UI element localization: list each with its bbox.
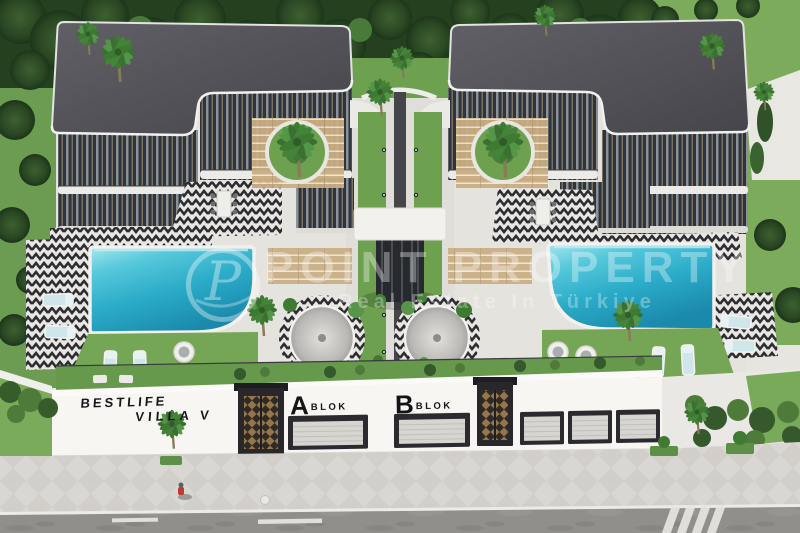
estate-name-line2: VILLA V [135,407,214,424]
block-a-letter: A [290,395,309,415]
watermark-title: POINT PROPERTY [264,243,751,293]
watermark-subtitle: Real Estate In Türkiye [338,291,656,314]
block-a-word: BLOK [311,401,348,413]
block-b-letter: B [395,394,414,414]
garage-door-2 [568,410,612,444]
aerial-villa-render: BESTLIFE VILLA V A BLOK B BLOK P POINT P… [0,0,800,533]
block-b-word: BLOK [416,400,453,412]
estate-name-sign: BESTLIFE VILLA V [79,392,215,426]
gate-a-icon [234,383,288,455]
watermark-logo-icon: P [186,248,260,322]
watermark-logo-letter: P [205,255,241,309]
gate-b-icon [473,377,517,446]
block-b-sign: B BLOK [395,393,453,414]
garage-door-3 [616,409,660,443]
garage-door-1 [520,411,564,445]
block-a-sign: A BLOK [290,394,348,415]
